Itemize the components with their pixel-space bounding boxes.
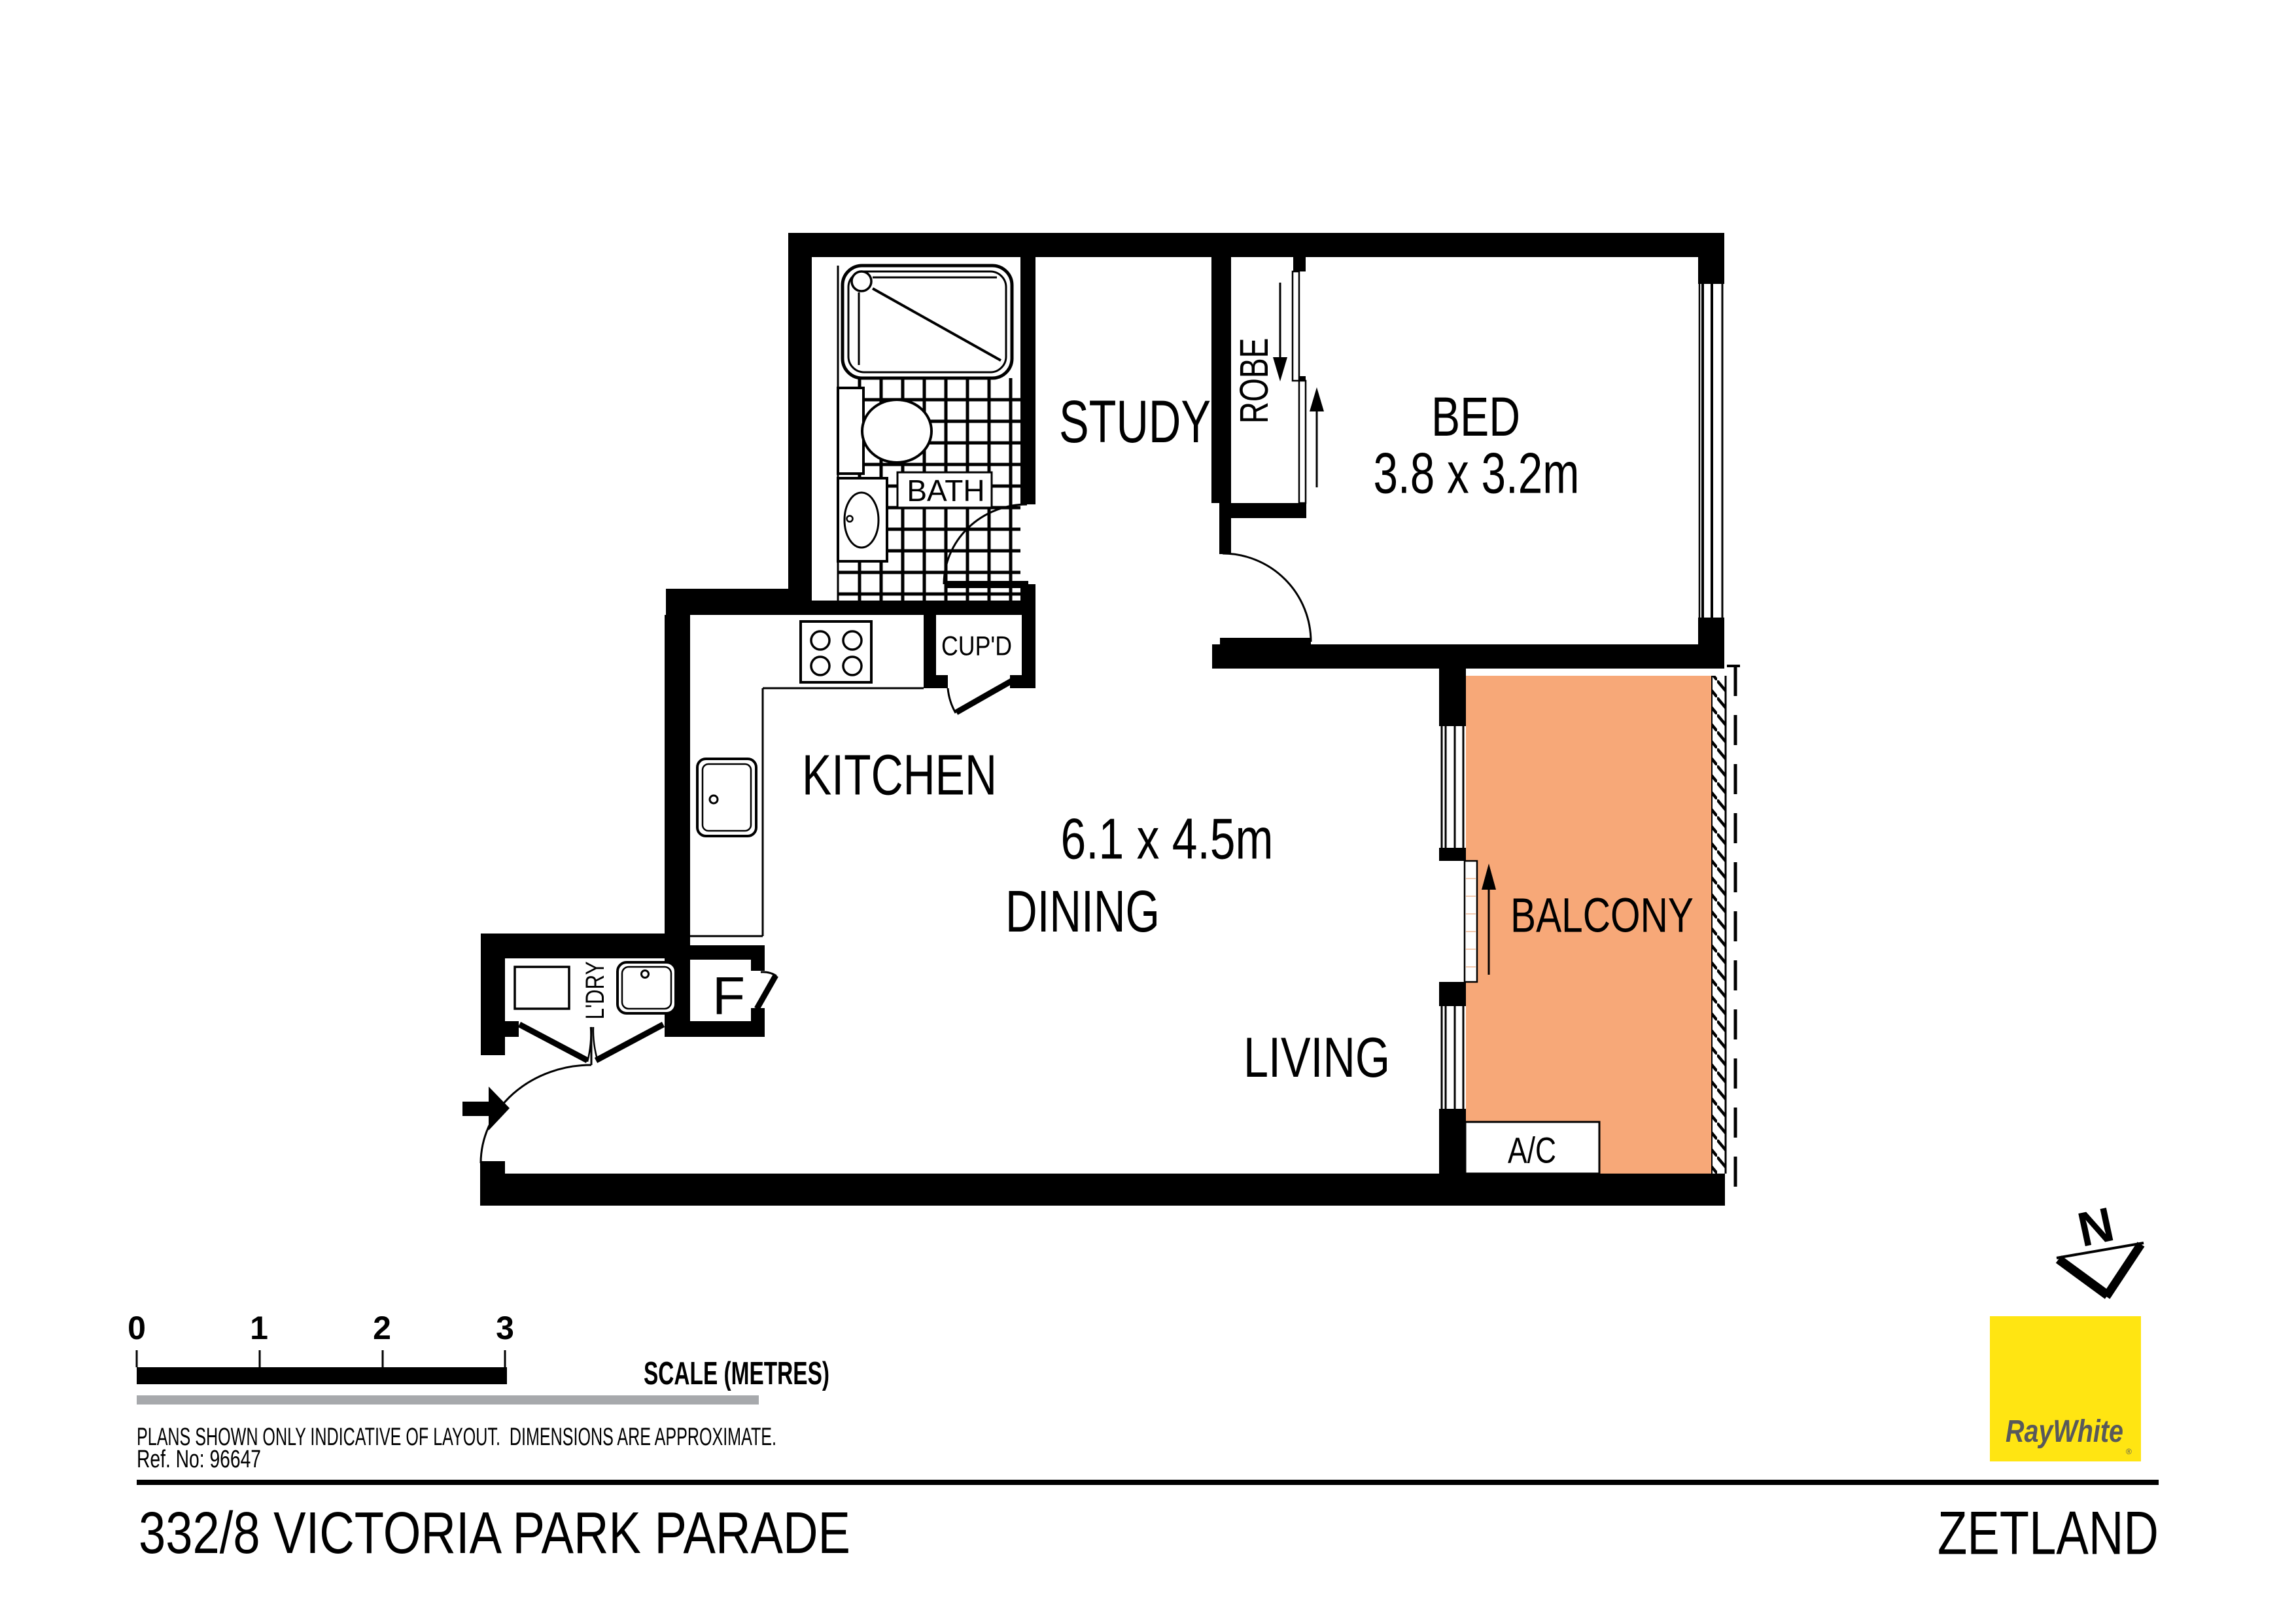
svg-text:332/8 VICTORIA PARK PARADE: 332/8 VICTORIA PARK PARADE <box>139 1501 850 1566</box>
svg-text:®: ® <box>2126 1447 2132 1456</box>
svg-text:Ref. No: 96647: Ref. No: 96647 <box>137 1446 261 1473</box>
svg-text:F: F <box>712 967 745 1026</box>
svg-text:0: 0 <box>128 1310 146 1346</box>
svg-text:SCALE (METRES): SCALE (METRES) <box>644 1356 829 1391</box>
svg-text:ROBE: ROBE <box>1232 338 1276 424</box>
svg-text:3.8 x 3.2m: 3.8 x 3.2m <box>1374 441 1580 506</box>
svg-text:BED: BED <box>1431 386 1520 447</box>
svg-text:ZETLAND: ZETLAND <box>1938 1499 2159 1567</box>
svg-text:CUP'D: CUP'D <box>941 631 1012 661</box>
svg-text:BALCONY: BALCONY <box>1510 888 1694 943</box>
svg-text:LIVING: LIVING <box>1244 1026 1390 1089</box>
svg-text:2: 2 <box>373 1310 391 1346</box>
svg-text:A/C: A/C <box>1508 1130 1556 1171</box>
svg-text:DINING: DINING <box>1005 879 1160 945</box>
svg-text:6.1 x 4.5m: 6.1 x 4.5m <box>1061 807 1274 871</box>
svg-text:3: 3 <box>496 1310 514 1346</box>
svg-text:STUDY: STUDY <box>1059 389 1211 455</box>
svg-text:1: 1 <box>250 1310 268 1346</box>
svg-text:L'DRY: L'DRY <box>581 962 610 1020</box>
svg-text:RayWhite: RayWhite <box>2006 1414 2123 1449</box>
svg-text:KITCHEN: KITCHEN <box>802 744 997 807</box>
svg-text:BATH: BATH <box>907 474 984 508</box>
